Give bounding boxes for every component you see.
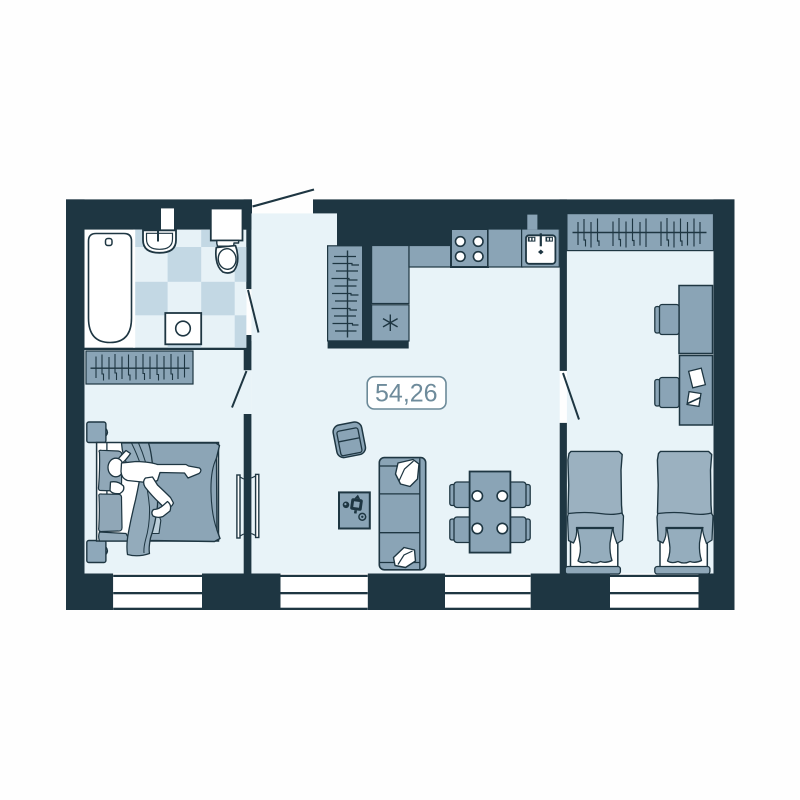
svg-text:54,26: 54,26 bbox=[375, 380, 438, 408]
